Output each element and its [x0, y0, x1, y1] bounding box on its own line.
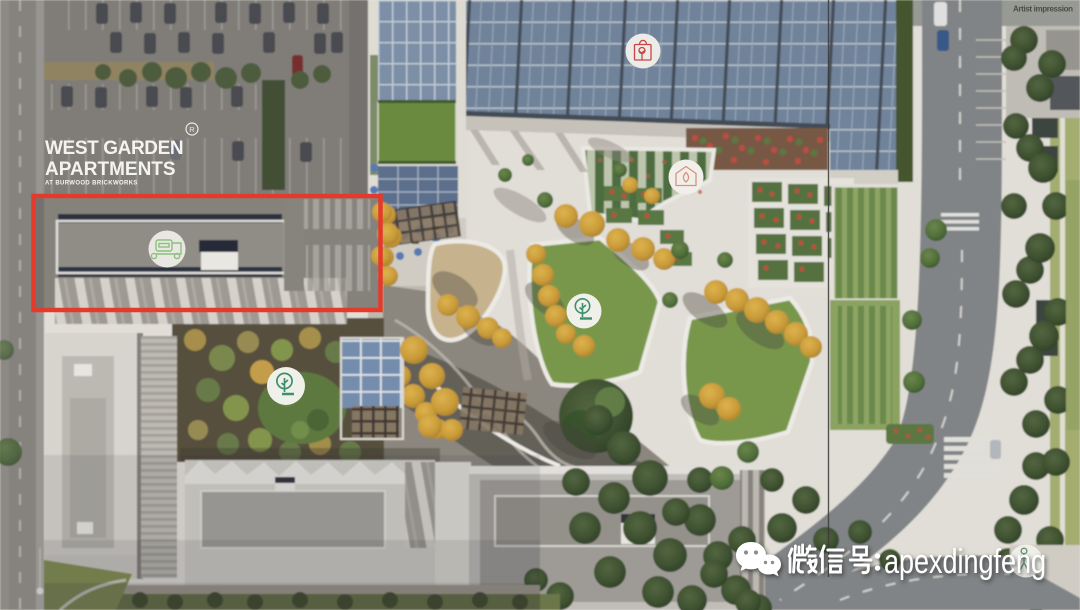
svg-text:AT BURWOOD BRICKWORKS: AT BURWOOD BRICKWORKS	[45, 181, 138, 187]
svg-text:APARTMENTS: APARTMENTS	[45, 159, 176, 180]
svg-text:Artist impression: Artist impression	[1013, 5, 1073, 14]
svg-text:R: R	[189, 125, 195, 134]
svg-text:WEST GARDEN: WEST GARDEN	[45, 138, 184, 159]
svg-text:apexdingfeng: apexdingfeng	[884, 543, 1046, 581]
